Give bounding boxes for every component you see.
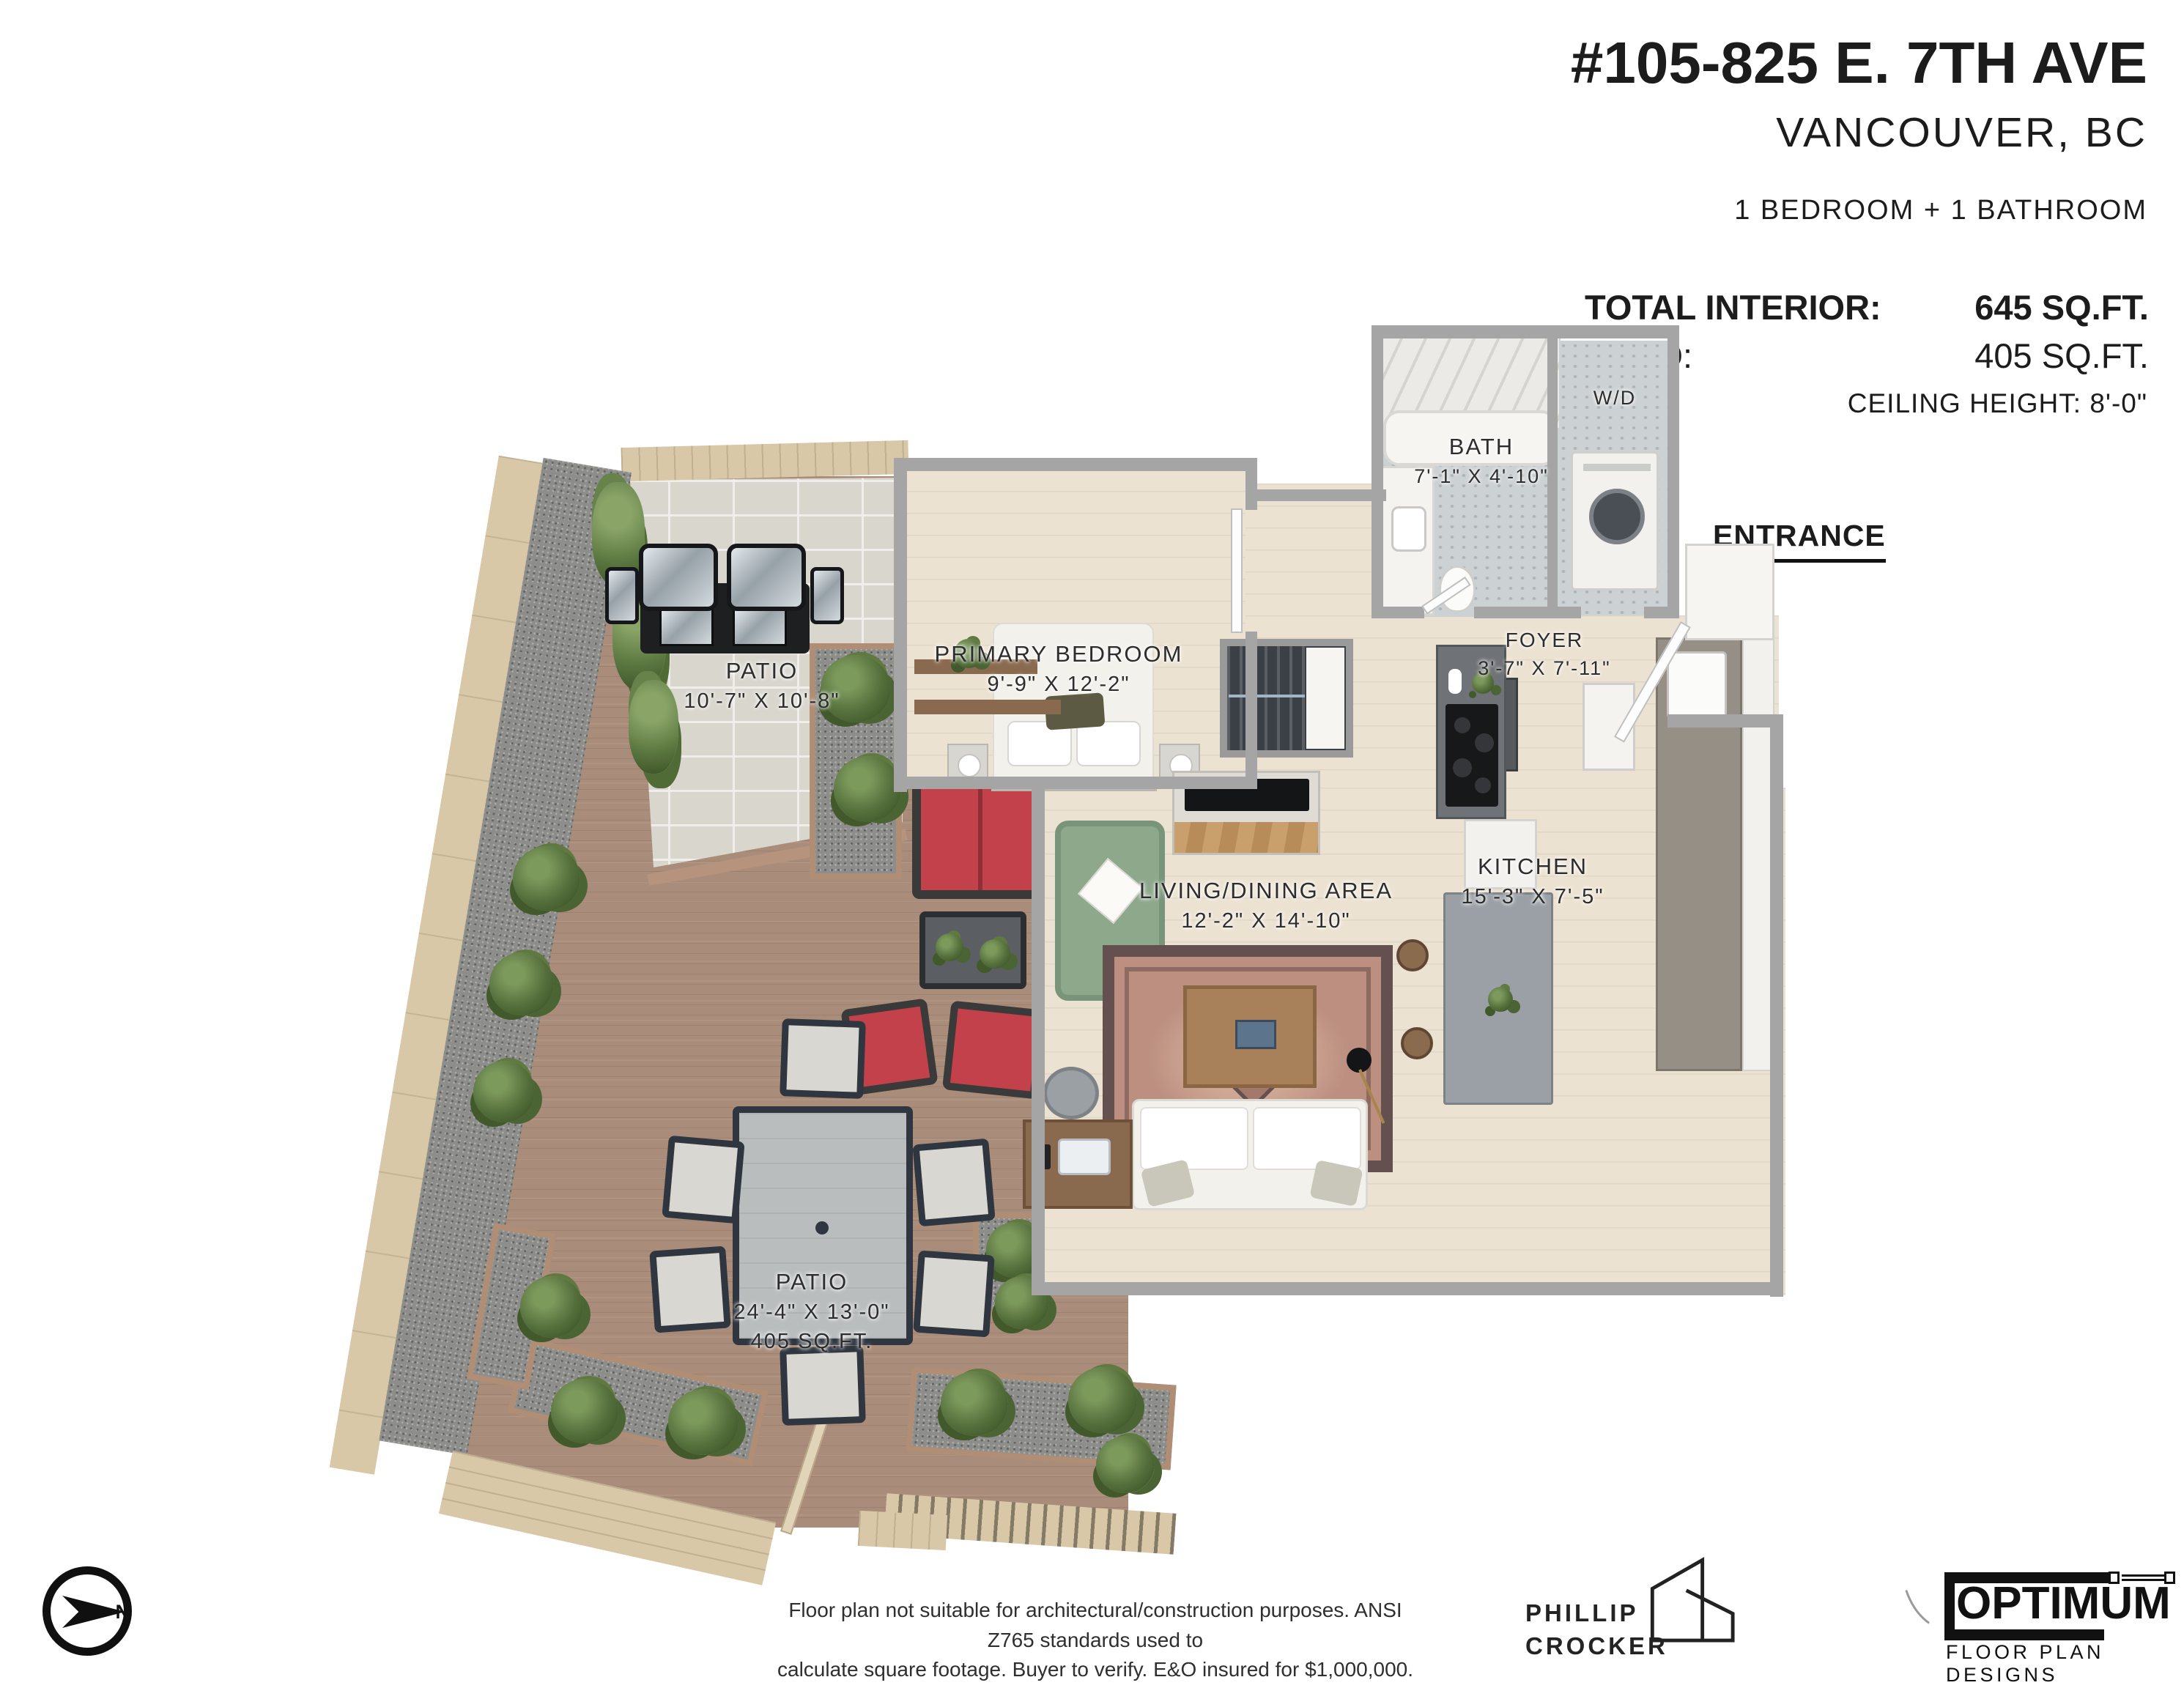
wall-unit-east [1770,718,1783,1297]
floor-plan: PATIO 10'-7" X 10'-8" PRIMARY BEDROOM 9'… [410,308,1817,1593]
pillow [1076,721,1141,766]
wall-bedroom-east-upper [1245,489,1257,510]
bbq-lid [727,544,806,611]
seat-cushion [1253,1107,1361,1170]
subtitle-city: VANCOUVER, BC [1776,108,2147,157]
wall-bath-south-right [1474,607,1561,618]
floor-lamp [1347,1048,1372,1073]
label-kitchen: KITCHEN 15'-3" X 7'-5" [1461,854,1604,909]
sofa [1132,1099,1368,1210]
potted-plant [980,939,1010,969]
bbq-drawer [659,608,714,646]
fence-top [621,440,908,481]
shrub [513,846,580,911]
wall-bath-west [1372,325,1383,618]
kitchen-sink [1667,651,1727,719]
desktop-computer [1058,1139,1111,1175]
closet-rod [1229,695,1305,697]
umbrella-hole [815,1221,829,1234]
wall-bedroom-north [894,458,1257,471]
disclaimer-text: Floor plan not suitable for architectura… [773,1596,1418,1685]
disclaimer-line1: Floor plan not suitable for architectura… [788,1599,1402,1651]
label-living-dining: LIVING/DINING AREA 12'-2" X 14'-10" [1139,878,1393,933]
shrub [834,756,901,822]
wall-bath-north [1372,325,1679,338]
burner [1453,758,1472,777]
washer-dryer-unit [1571,451,1659,591]
hanging-clothes [1227,646,1305,750]
wall-bedroom-south [894,777,1257,789]
shrub [489,952,554,1015]
washer-door [1589,489,1645,544]
label-patio-upper: PATIO 10'-7" X 10'-8" [684,658,840,714]
bath-sink [1391,506,1426,552]
stat-ceiling-height: CEILING HEIGHT: 8'-0" [1848,388,2147,419]
paper-towel-roll [1448,669,1462,694]
designer-house-icon [1647,1555,1736,1644]
wall-hall-north [1245,489,1386,501]
shrub [1068,1367,1137,1433]
wall-living-west [1032,777,1045,1295]
north-compass: N [42,1566,132,1656]
bar-stool [1396,939,1429,971]
burner [1454,717,1470,733]
company-name: OPTIMUM [1956,1577,2171,1629]
label-foyer: FOYER 3'-7" X 7'-11" [1478,629,1611,680]
label-bath: BATH 7'-1" X 4'-10" [1414,434,1549,488]
books-stack [1235,1020,1276,1049]
stat-total-interior-value: 645 SQ.FT. [1974,287,2149,327]
bath-vanity [1379,466,1435,615]
wall-laundry-east [1667,325,1679,618]
closet-door-panel [1306,648,1344,749]
coffee-table [1183,985,1317,1088]
seat-cushion [1140,1107,1248,1170]
shrub [551,1379,618,1443]
loveseat-cushion-divider [978,774,982,890]
north-label: N [116,1601,130,1624]
wall-laundry-south-left [1558,607,1581,618]
shrub [668,1389,739,1455]
wall-unit-south [1032,1282,1783,1295]
shrub [520,1276,583,1338]
bbq-side-shelf [810,567,844,624]
dining-chair [662,1136,744,1224]
cooktop [1445,704,1498,807]
potted-plant [936,933,963,961]
disclaimer-line2: calculate square footage. Buyer to verif… [777,1658,1413,1681]
burner [1475,733,1494,752]
burner [1475,777,1491,793]
throw-pillow [1078,858,1144,924]
wall-bedroom-east-lower [1245,632,1257,789]
bar-stool [1401,1027,1433,1059]
company-logo: OPTIMUM FLOOR PLAN DESIGNS [1911,1568,2182,1659]
console-wood-front [1174,822,1318,853]
closet [1220,639,1353,758]
dining-chair [912,1139,995,1227]
gate-panel [858,1511,947,1550]
bbq-side-shelf [605,567,639,624]
dining-chair [780,1345,866,1426]
stat-patio-value: 405 SQ.FT. [1974,336,2149,376]
bamboo-plant [629,680,678,774]
desk-chair [1043,1067,1099,1119]
bbq-grill [639,541,811,659]
kitchen-counter-run [1656,637,1742,1071]
wall-bath-south-left [1372,607,1424,618]
bed-bath-configuration: 1 BEDROOM + 1 BATHROOM [1734,195,2147,226]
label-laundry: W/D [1593,387,1636,410]
shrub [473,1061,535,1122]
outdoor-chair [942,1001,1046,1100]
wall-bedroom-west [894,458,907,792]
wall-shelf [914,700,1061,714]
wall-laundry-south-right [1644,607,1679,618]
washer-control-panel [1583,464,1651,471]
wall-entrance-south [1667,714,1783,728]
logo-bottom-bar [1944,1629,2104,1640]
dining-chair [780,1018,866,1099]
page-title: #105-825 E. 7TH AVE [1571,29,2147,97]
label-primary-bedroom: PRIMARY BEDROOM 9'-9" X 12'-2" [935,641,1183,697]
shrub [941,1371,1008,1436]
bbq-drawer [733,608,787,646]
company-tagline: FLOOR PLAN DESIGNS [1946,1641,2182,1687]
dining-chair [913,1251,995,1338]
island-plant [1488,987,1513,1012]
table-lamp [958,754,981,777]
dining-chair [649,1246,731,1333]
label-patio-lower: PATIO 24'-4" X 13'-0" 405 SQ.FT. [733,1269,889,1354]
kitchen-island [1443,892,1553,1105]
bedroom-door [1231,508,1243,633]
shrub [1096,1436,1155,1493]
bbq-lid [639,544,718,611]
outdoor-coffee-table [919,911,1026,989]
kitchen-tall-cabinet [1685,544,1774,640]
